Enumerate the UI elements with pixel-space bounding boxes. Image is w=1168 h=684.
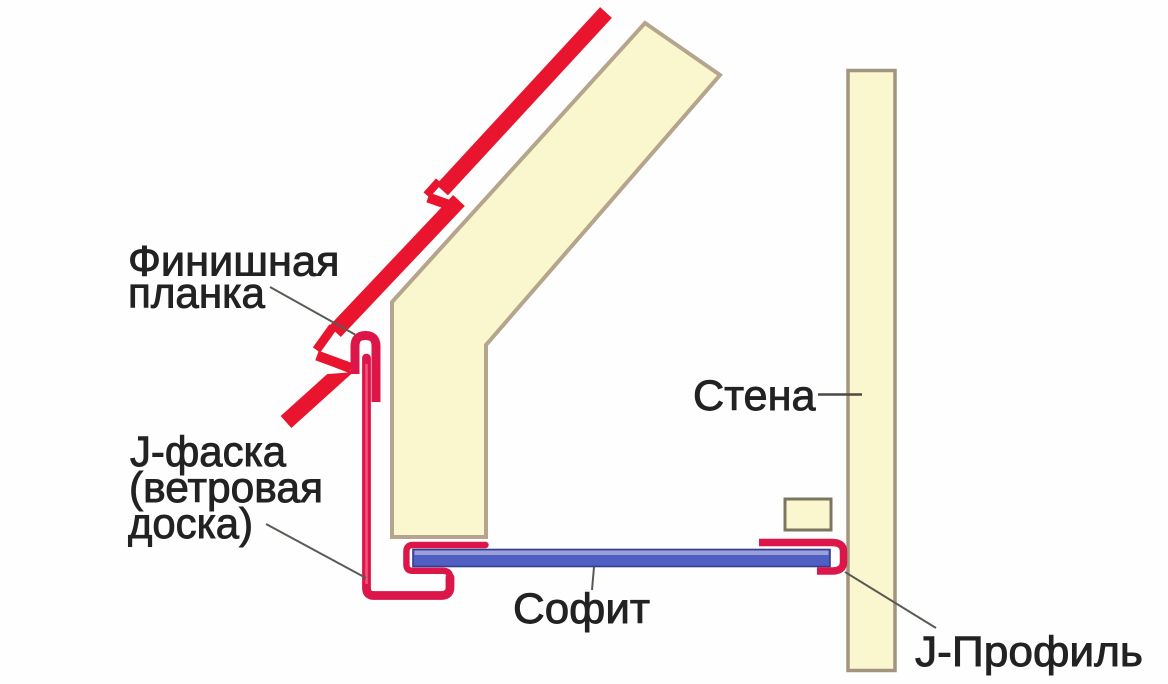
svg-text:Софит: Софит [513,585,650,633]
svg-text:планка: планка [128,270,265,318]
svg-text:Стена: Стена [693,372,816,420]
svg-text:J-Профиль: J-Профиль [915,628,1143,676]
svg-text:доска): доска) [128,500,253,548]
